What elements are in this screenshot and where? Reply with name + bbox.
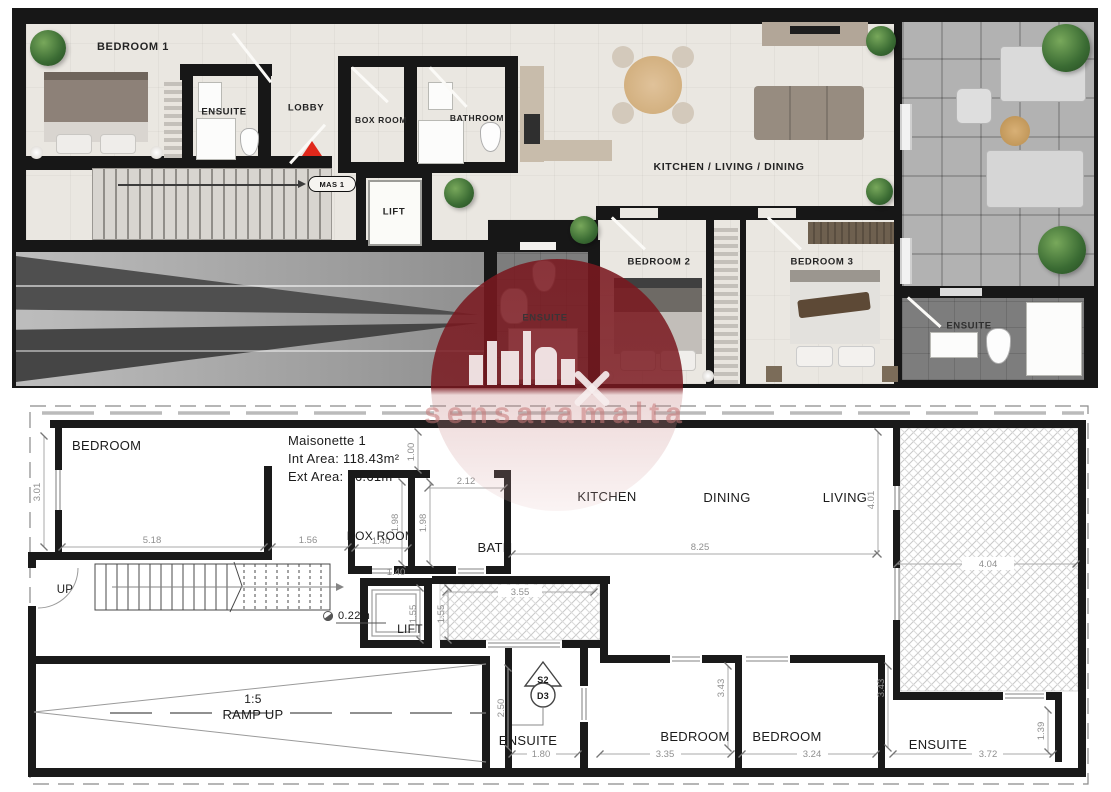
room-label-ensuite-right: ENSUITE (946, 321, 991, 332)
dim: 1.00 (406, 443, 417, 462)
ramp-area (16, 252, 488, 386)
bed (790, 270, 880, 380)
wall (894, 286, 1094, 298)
dim: 1.39 (1036, 722, 1047, 741)
dim: 1.56 (299, 535, 318, 546)
watermark-text: sensaramalta (424, 397, 688, 431)
dim: 3.72 (979, 749, 998, 760)
sofa (754, 86, 864, 140)
dim: 5.18 (143, 535, 162, 546)
dim: 4.04 (979, 559, 998, 570)
watermark-skyline (561, 359, 575, 385)
bed (44, 72, 148, 158)
wardrobe (714, 228, 738, 384)
door-lines (620, 208, 658, 218)
plan-title: Maisonette 1 (288, 433, 366, 448)
stairs-direction-arrow (336, 583, 344, 591)
bedside-table (766, 366, 782, 382)
wall (404, 56, 518, 67)
label-ramp-ratio: 1:5 (244, 692, 262, 706)
dim: 3.35 (656, 749, 675, 760)
room-label-lobby: LOBBY (288, 103, 324, 114)
wardrobe (164, 80, 182, 158)
bedside-lamp (150, 146, 163, 159)
shower (196, 118, 236, 160)
symbol-d3: D3 (537, 691, 549, 701)
bedside-lamp (702, 370, 714, 382)
bedside-lamp (30, 146, 43, 159)
dim: 1.55 (408, 605, 419, 624)
stairs-arrow-head (298, 180, 306, 188)
wall (505, 56, 518, 172)
plan-ext-area: Ext Area: 26.61m² (288, 469, 398, 484)
dim: 3.43 (716, 679, 727, 698)
ramp-joint-line (16, 350, 488, 352)
wall (404, 56, 417, 172)
room-label-bedroom2: BEDROOM 2 (628, 257, 691, 268)
watermark-skyline (501, 351, 519, 385)
dim: 1.40 (387, 567, 406, 578)
room-label-boxroom: BOX ROOM (355, 115, 407, 125)
watermark-circle (431, 259, 683, 511)
room-label-lift: LIFT (383, 207, 405, 218)
label-bedroom-b2: BEDROOM (752, 729, 821, 744)
plant (30, 30, 66, 66)
tv (790, 26, 840, 34)
plant (1042, 24, 1090, 72)
wall (356, 168, 366, 250)
bedside-table (882, 366, 898, 382)
room-label-bedroom3: BEDROOM 3 (791, 257, 854, 268)
label-ramp: RAMP UP (222, 707, 283, 722)
stairs-arrow-line (118, 184, 300, 186)
dim: 3.43 (876, 679, 887, 698)
plant (866, 178, 893, 205)
watermark-skyline (535, 347, 557, 385)
watermark-skyline (469, 355, 483, 385)
door-lines (940, 288, 982, 296)
dining-chair (612, 102, 634, 124)
label-bedroom-b1: BEDROOM (660, 729, 729, 744)
dim: 3.55 (511, 587, 530, 598)
dim: 3.01 (32, 483, 43, 502)
wall (706, 220, 714, 384)
dim: 1.98 (418, 514, 429, 533)
wall (740, 220, 746, 384)
mas-tag-label: MAS 1 (320, 180, 345, 189)
shower-tray (418, 120, 464, 164)
label-ensuite-mid: ENSUITE (499, 733, 557, 748)
stove (524, 114, 540, 144)
label-bedroom: BEDROOM (72, 438, 141, 453)
outdoor-chair (956, 88, 992, 124)
room-label-ensuite1: ENSUITE (201, 107, 246, 118)
plant (570, 216, 598, 244)
door-lines (900, 238, 912, 284)
dim: 2.50 (496, 699, 507, 718)
room-label-bedroom1: BEDROOM 1 (97, 41, 169, 53)
door-lines (758, 208, 796, 218)
plant (866, 26, 896, 56)
step-note: 0.22m (324, 610, 387, 623)
room-label-bathroom: BATHROOM (450, 113, 504, 123)
outdoor-sofa (986, 150, 1084, 208)
dim: 3.24 (803, 749, 822, 760)
dim: 1.55 (436, 605, 447, 624)
label-lift: LIFT (397, 622, 423, 636)
watermark-skyline (523, 331, 531, 385)
dining-chair (672, 102, 694, 124)
stairs (92, 168, 332, 240)
dresser (808, 222, 894, 244)
label-ensuite-right: ENSUITE (909, 737, 967, 752)
mas-tag: MAS 1 (308, 176, 356, 192)
vanity (930, 332, 978, 358)
floor-plan-page: MAS 1 (0, 0, 1111, 792)
symbol-s2: S2 (537, 675, 549, 685)
door-lines (900, 104, 912, 150)
plan-info: Maisonette 1 Int Area: 118.43m² Ext Area… (288, 433, 400, 484)
door-lines (520, 242, 556, 250)
dining-table (624, 56, 682, 114)
entrance-marker (302, 141, 322, 156)
stairs-plan (38, 562, 336, 612)
coffee-table (1000, 116, 1030, 146)
dining-chair (672, 46, 694, 68)
dim: 4.01 (866, 491, 877, 510)
dim: 1.80 (532, 749, 551, 760)
step-height: 0.22m (338, 610, 370, 622)
room-label-ensuite-mid: ENSUITE (522, 313, 567, 324)
label-boxroom: BOX ROOM (347, 529, 415, 543)
wall (422, 168, 432, 250)
watermark-skyline (487, 341, 497, 385)
ramp-joint-line (16, 285, 488, 287)
label-up: UP (57, 584, 74, 596)
wall (338, 56, 351, 172)
label-bath: BATH (478, 540, 513, 555)
wall (356, 168, 432, 178)
plan-int-area: Int Area: 118.43m² (288, 451, 400, 466)
shower (1026, 302, 1082, 376)
plant (1038, 226, 1086, 274)
label-living: LIVING (823, 490, 867, 505)
label-dining: DINING (703, 490, 750, 505)
dim: 8.25 (691, 542, 710, 553)
room-label-kitchen-living-dining: KITCHEN / LIVING / DINING (654, 161, 805, 173)
plant (444, 178, 474, 208)
